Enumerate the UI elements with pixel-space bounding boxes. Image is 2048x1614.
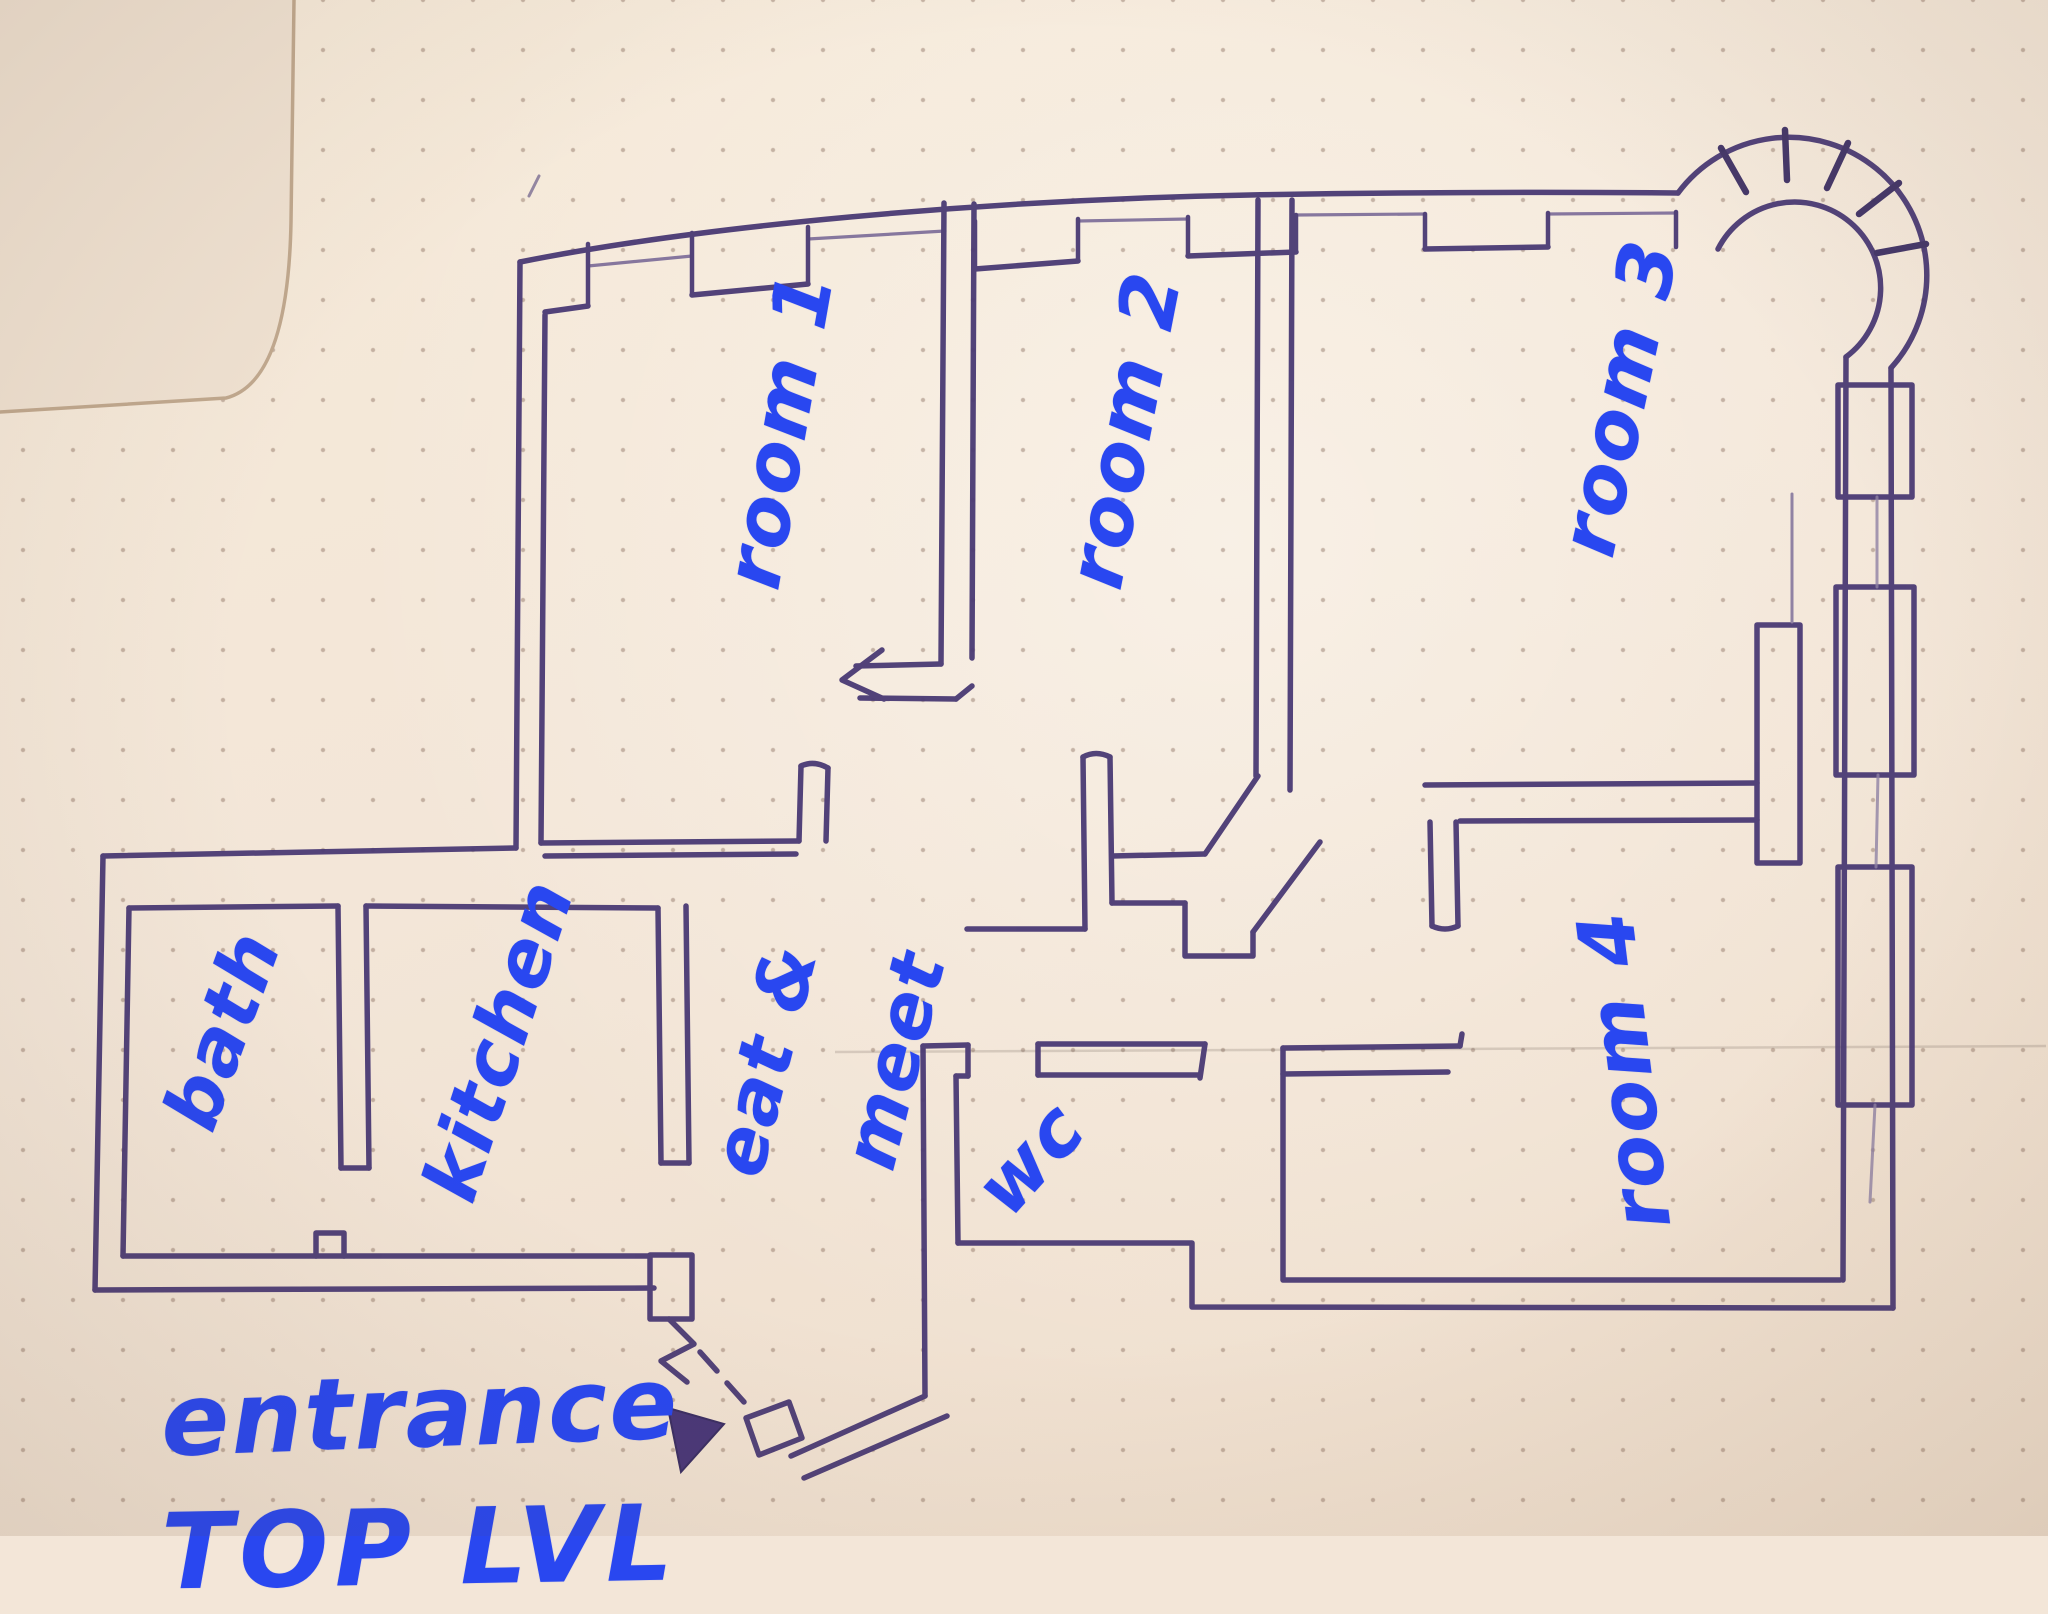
corridor-north-walls — [967, 754, 1320, 957]
stray-pen-mark — [529, 176, 539, 196]
entrance-door-dashes — [700, 1352, 744, 1402]
top-wall-window-sills — [588, 213, 1676, 266]
room1-room2-divider — [842, 203, 974, 699]
label-top-lvl: TOP LVL — [160, 1482, 679, 1613]
right-wall — [1836, 357, 1914, 1308]
top-wall-inner — [545, 247, 1548, 312]
right-wall-glass-lines — [1870, 497, 1878, 1202]
room2-room3-divider — [1256, 200, 1292, 790]
bottom-walls — [958, 1048, 1893, 1308]
under-page-corner — [0, 0, 294, 412]
wc-walls — [923, 1044, 1205, 1396]
room1-left-wall — [516, 262, 545, 848]
door-swing-arrow — [842, 650, 884, 699]
floor-plan-drawing — [0, 0, 2048, 1536]
hall-top-wall — [541, 763, 828, 856]
bay-window — [1678, 130, 1927, 368]
label-entrance: entrance — [159, 1344, 681, 1479]
photo-of-floor-plan: { "colors": { "paper": "#f3e6d8", "ink":… — [0, 0, 2048, 1536]
